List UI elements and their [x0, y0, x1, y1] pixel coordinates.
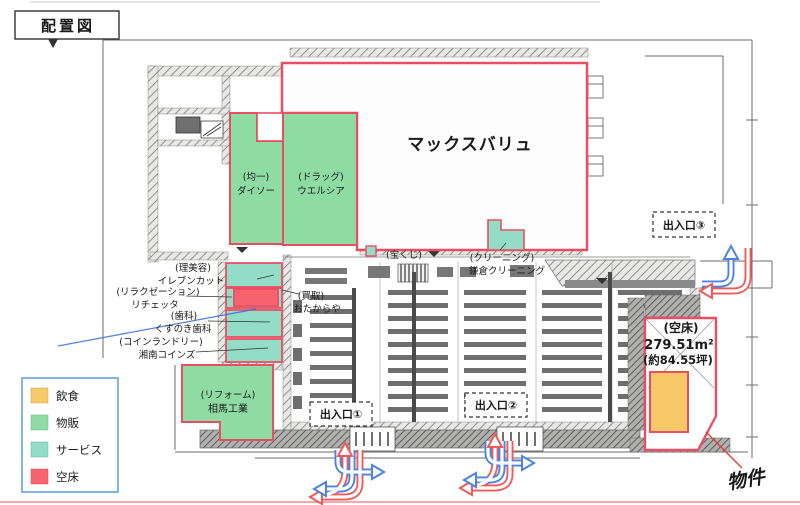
area-stair-notch [257, 113, 283, 141]
cleaning-name: 鎌倉クリーニング [469, 265, 546, 277]
entrance-3-label: 出入口③ [663, 218, 705, 232]
kusunoki-name: くすのき歯科 [155, 323, 212, 335]
wall-shelves [293, 300, 302, 409]
vacancy-m2: 279.51m² [644, 338, 713, 353]
daiso-name: ダイソー [237, 185, 275, 197]
entrance-3-box: 出入口③ [653, 212, 715, 237]
legend-swatch-service [31, 442, 48, 457]
ramp-icon [201, 121, 223, 138]
shonan-cat: (コインランドリー) [119, 337, 202, 348]
legend-label-service: サービス [56, 443, 102, 457]
loading-docks [588, 76, 603, 176]
vacancy-tsubo: (約84.55坪) [643, 353, 713, 367]
anchor-label: マックスバリュ [407, 135, 533, 155]
legend-swatch-retail [31, 415, 48, 430]
takarakuji-cat: (宝くじ) [386, 249, 422, 261]
vacant-food-space [650, 372, 688, 432]
welcia-cat: (ドラッグ) [298, 171, 343, 183]
page-title: 配置図 [41, 17, 95, 35]
soma-name: 相馬工業 [208, 402, 248, 415]
shonan-name: 湘南コインズ [139, 349, 196, 361]
site-plan-svg: 出入口① 出入口② 出入口③ マックスバリュ (均一) ダイソー (ドラッグ) … [0, 0, 800, 505]
vacancy-label: (空床) [664, 320, 699, 335]
entrance-2-box: 出入口② [465, 393, 527, 417]
shelf-group-4 [542, 290, 602, 412]
legend-swatch-food [31, 388, 48, 403]
welcia-name: ウエルシア [297, 186, 345, 197]
legend-label-vacant: 空床 [56, 470, 79, 484]
handwritten-note: 物件 [725, 466, 768, 495]
vestibule-1 [350, 427, 395, 451]
elevencut-name: イレブンカット [158, 275, 225, 287]
legend-label-food: 飲食 [56, 389, 79, 403]
traffic-arrows-entrance3 [700, 246, 748, 298]
area-vacant-small [234, 289, 278, 306]
legend-label-retail: 物販 [56, 416, 79, 430]
entrance-2-label: 出入口② [475, 398, 517, 412]
otakaraya-cat: (買取) [298, 291, 324, 302]
richetta-cat: (リラクゼーション) [116, 286, 199, 298]
soma-cat: (リフォーム) [201, 390, 256, 401]
area-shonan [226, 339, 282, 362]
elevencut-cat: (理美容) [175, 262, 211, 274]
daiso-cat: (均一) [243, 171, 269, 183]
legend-swatch-vacant [31, 469, 48, 484]
shelf-group-2 [388, 290, 448, 412]
richetta-name: リチェッタ [131, 300, 179, 311]
layout-drawing-page: 出入口① 出入口② 出入口③ マックスバリュ (均一) ダイソー (ドラッグ) … [0, 0, 800, 505]
utility-box [176, 117, 200, 133]
cleaning-cat: (クリーニング) [470, 252, 534, 264]
entrance-1-box: 出入口① [310, 402, 372, 426]
otakaraya-name: おたからや [293, 304, 341, 315]
area-kusunoki [226, 310, 282, 337]
area-takarakuji [366, 246, 376, 256]
entrance-1-label: 出入口① [320, 407, 362, 421]
canopy-band [545, 260, 695, 288]
kusunoki-cat: (歯科) [171, 310, 197, 322]
legend: 飲食 物販 サービス 空床 [22, 378, 118, 492]
area-soma [182, 365, 273, 440]
